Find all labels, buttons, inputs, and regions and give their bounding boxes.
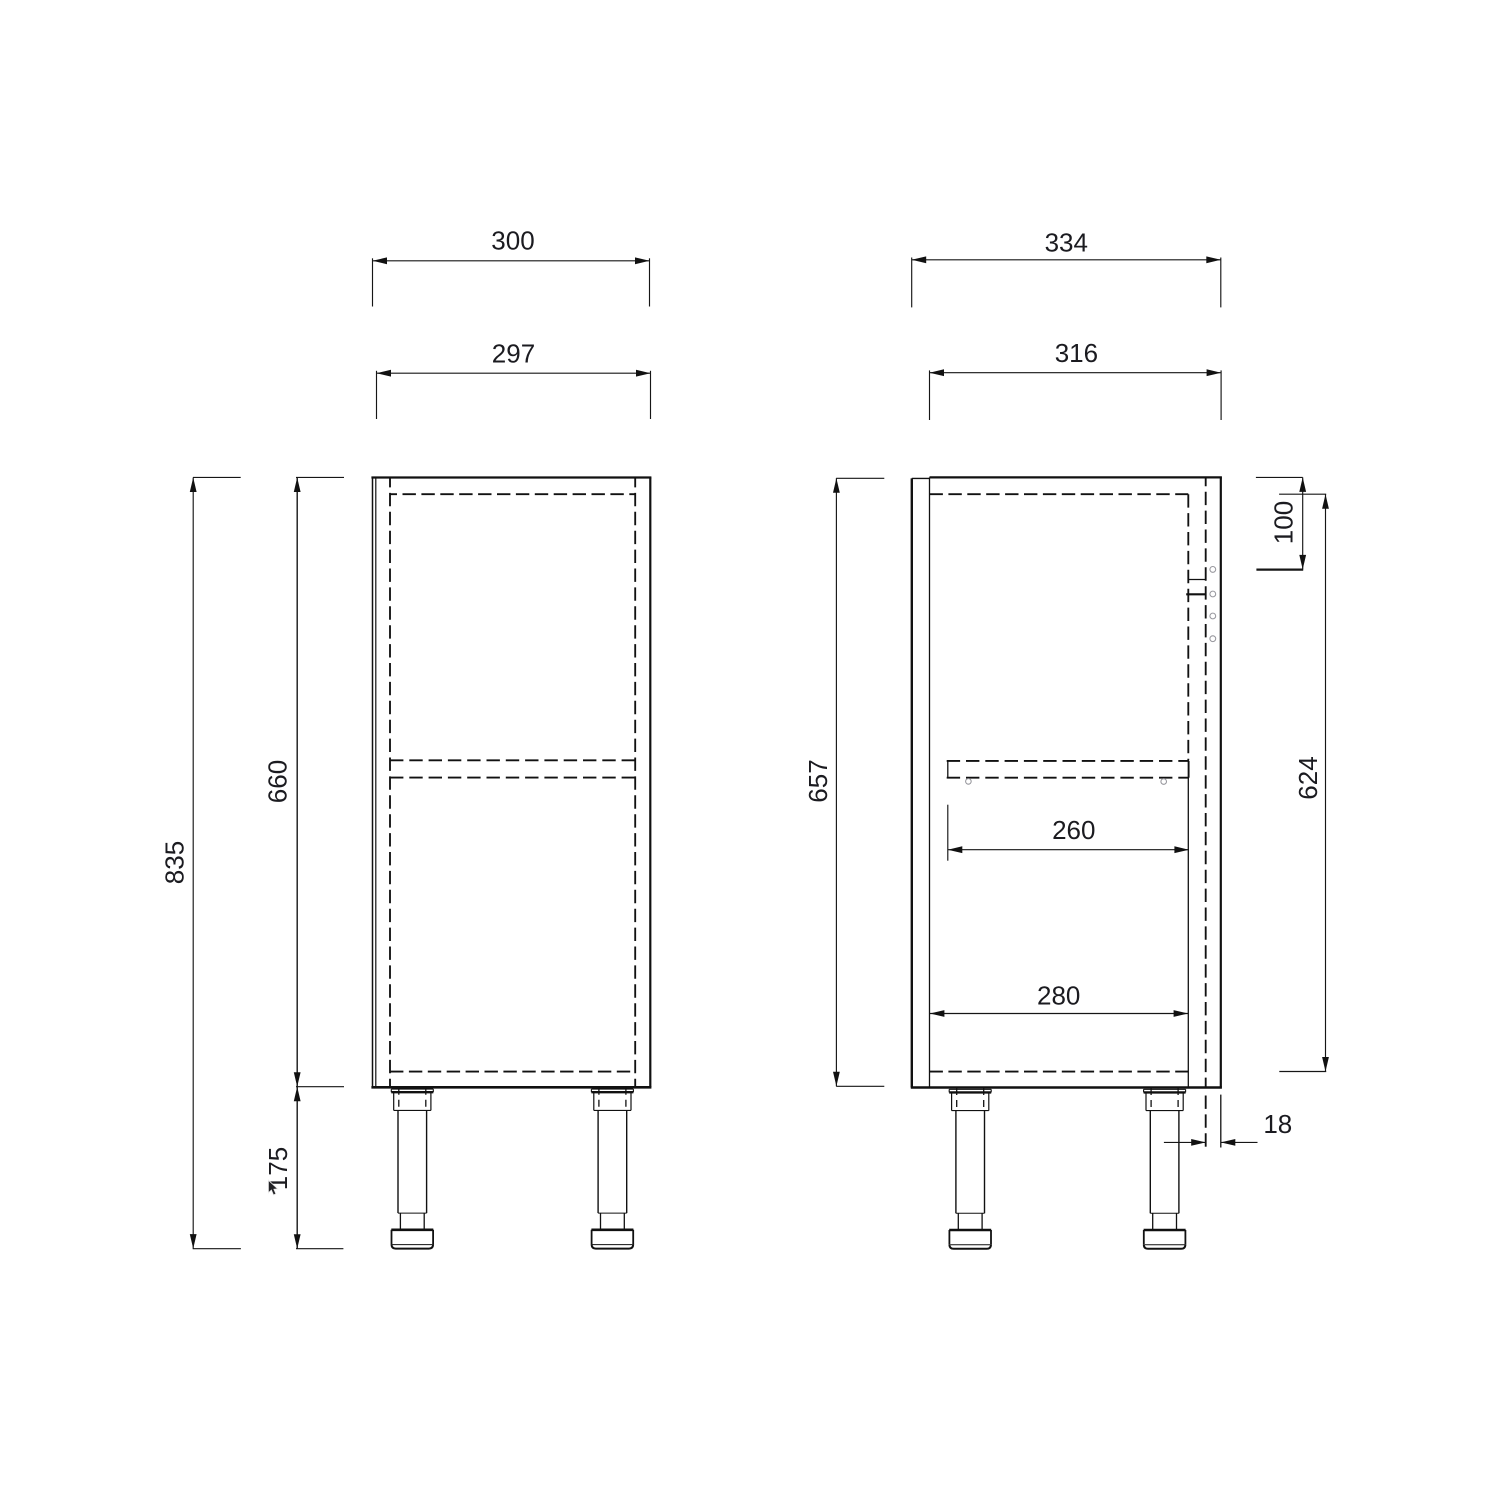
svg-text:300: 300 bbox=[491, 226, 534, 256]
svg-text:175: 175 bbox=[263, 1147, 293, 1190]
svg-text:657: 657 bbox=[803, 759, 833, 802]
svg-text:316: 316 bbox=[1055, 338, 1098, 368]
svg-text:297: 297 bbox=[492, 339, 535, 369]
svg-text:260: 260 bbox=[1052, 815, 1095, 845]
svg-text:660: 660 bbox=[263, 760, 293, 803]
svg-text:334: 334 bbox=[1045, 227, 1088, 257]
svg-text:624: 624 bbox=[1293, 756, 1323, 799]
svg-text:18: 18 bbox=[1263, 1109, 1292, 1139]
svg-text:280: 280 bbox=[1037, 980, 1080, 1010]
svg-text:835: 835 bbox=[159, 841, 189, 884]
svg-text:100: 100 bbox=[1269, 501, 1299, 544]
